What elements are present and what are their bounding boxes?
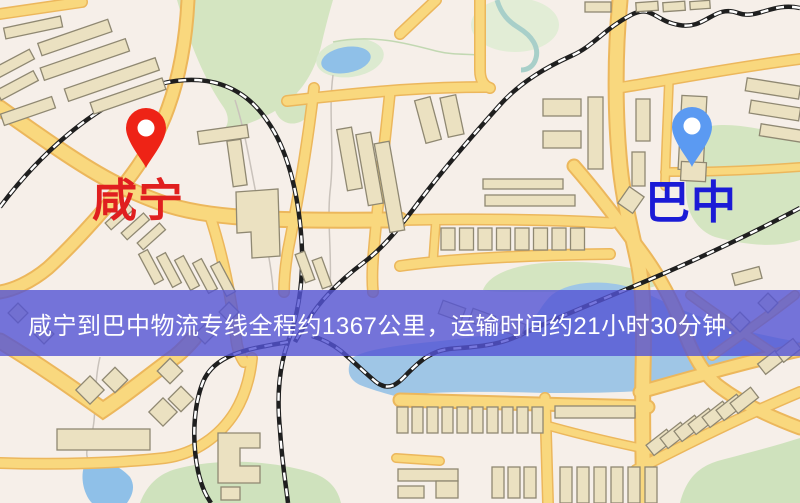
destination-pin-shape xyxy=(672,107,712,167)
origin-label: 咸宁 xyxy=(92,178,184,223)
map-canvas[interactable] xyxy=(0,0,800,503)
origin-pin-shape xyxy=(126,108,166,168)
origin-pin-icon[interactable] xyxy=(118,104,174,170)
destination-label: 巴中 xyxy=(645,180,737,225)
route-info-banner: 咸宁到巴中物流专线全程约1367公里，运输时间约21小时30分钟. xyxy=(0,290,800,356)
map-view[interactable]: 咸宁 巴中 咸宁到巴中物流专线全程约1367公里，运输时间约21小时30分钟. xyxy=(0,0,800,503)
destination-pin-icon[interactable] xyxy=(664,103,720,169)
route-info-text: 咸宁到巴中物流专线全程约1367公里，运输时间约21小时30分钟. xyxy=(28,306,734,341)
